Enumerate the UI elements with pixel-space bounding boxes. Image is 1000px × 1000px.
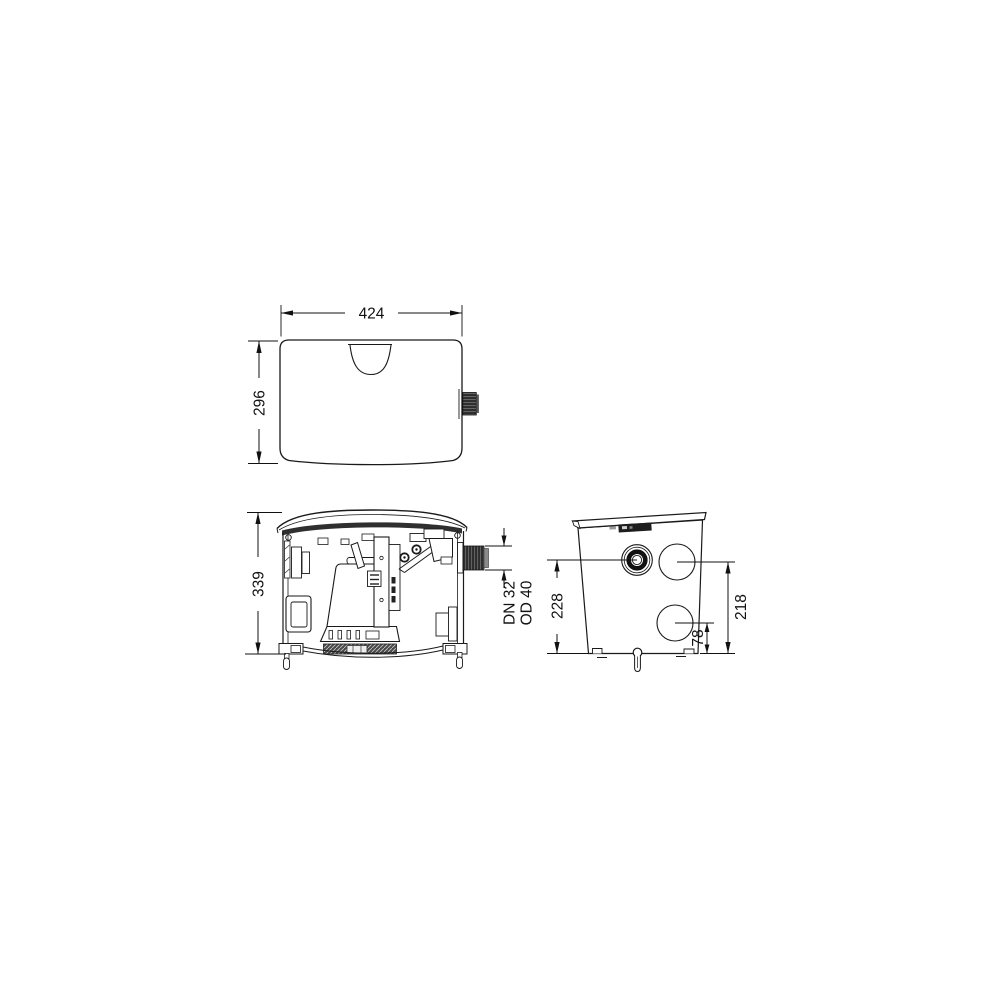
top-view: 424 296 <box>248 305 479 465</box>
pressure-outlet <box>458 543 489 574</box>
side-body <box>578 520 703 654</box>
dim-label-424: 424 <box>359 306 385 323</box>
lid-fitting <box>318 538 328 545</box>
dim-label-78: 78 <box>690 629 707 646</box>
check-valve-assembly <box>399 529 453 573</box>
dim-label-218: 218 <box>733 594 750 620</box>
drawing-canvas: 424 296 <box>0 0 1000 1000</box>
dim-label-296: 296 <box>252 390 269 416</box>
outlet-thread-front <box>463 546 484 570</box>
top-view-body-outline <box>280 340 462 465</box>
cable-hook <box>633 648 642 671</box>
left-bracket <box>285 541 310 578</box>
dim-outlet: DN 32 OD 40 <box>485 528 536 625</box>
dim-label-od40: OD 40 <box>519 580 536 625</box>
dim-label-228: 228 <box>550 593 567 619</box>
foot-step-left <box>593 649 603 654</box>
dim-height-339: 339 <box>245 513 286 655</box>
outlet-cap-top <box>476 395 479 414</box>
lid-clip-left <box>286 535 292 541</box>
dim-width-424: 424 <box>281 305 462 337</box>
dim-depth-296: 296 <box>248 341 278 464</box>
outlet-thread-top <box>463 393 477 416</box>
label-mark <box>609 526 616 529</box>
dim-label-dn32: DN 32 <box>502 581 519 625</box>
lid-fitting <box>362 534 374 541</box>
front-view: 339 DN 32 OD 40 <box>245 510 536 670</box>
dim-label-339: 339 <box>251 571 268 597</box>
lid-fitting <box>341 539 349 545</box>
foot-step-right <box>684 649 694 654</box>
dimension-drawing: 424 296 <box>0 0 1000 1000</box>
side-view: 228 218 78 <box>547 513 750 672</box>
